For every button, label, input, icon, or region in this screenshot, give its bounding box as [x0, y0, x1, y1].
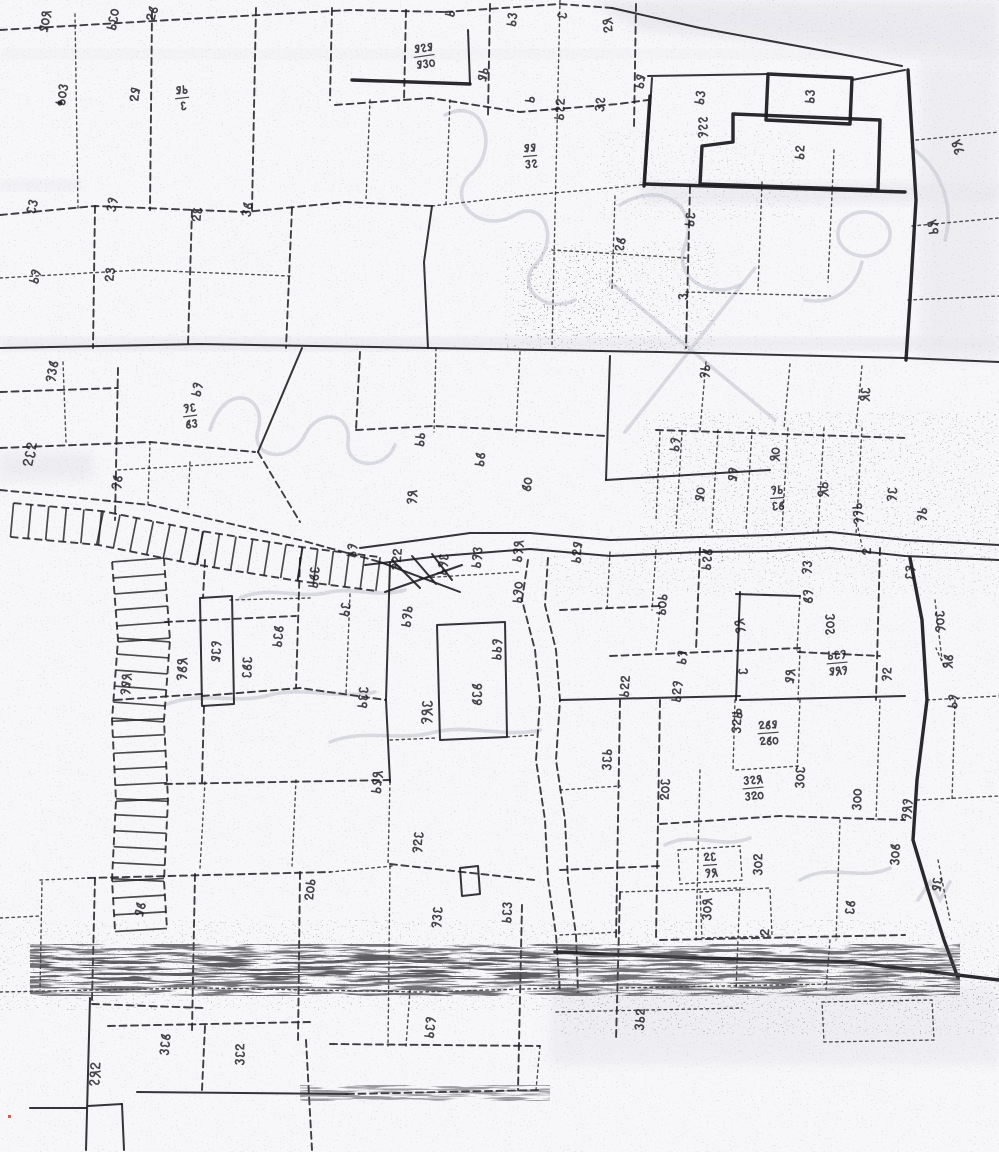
cadastral-map-scan [0, 0, 999, 1152]
scan-artifacts [0, 0, 999, 1152]
scanned-map-page [0, 0, 999, 1152]
